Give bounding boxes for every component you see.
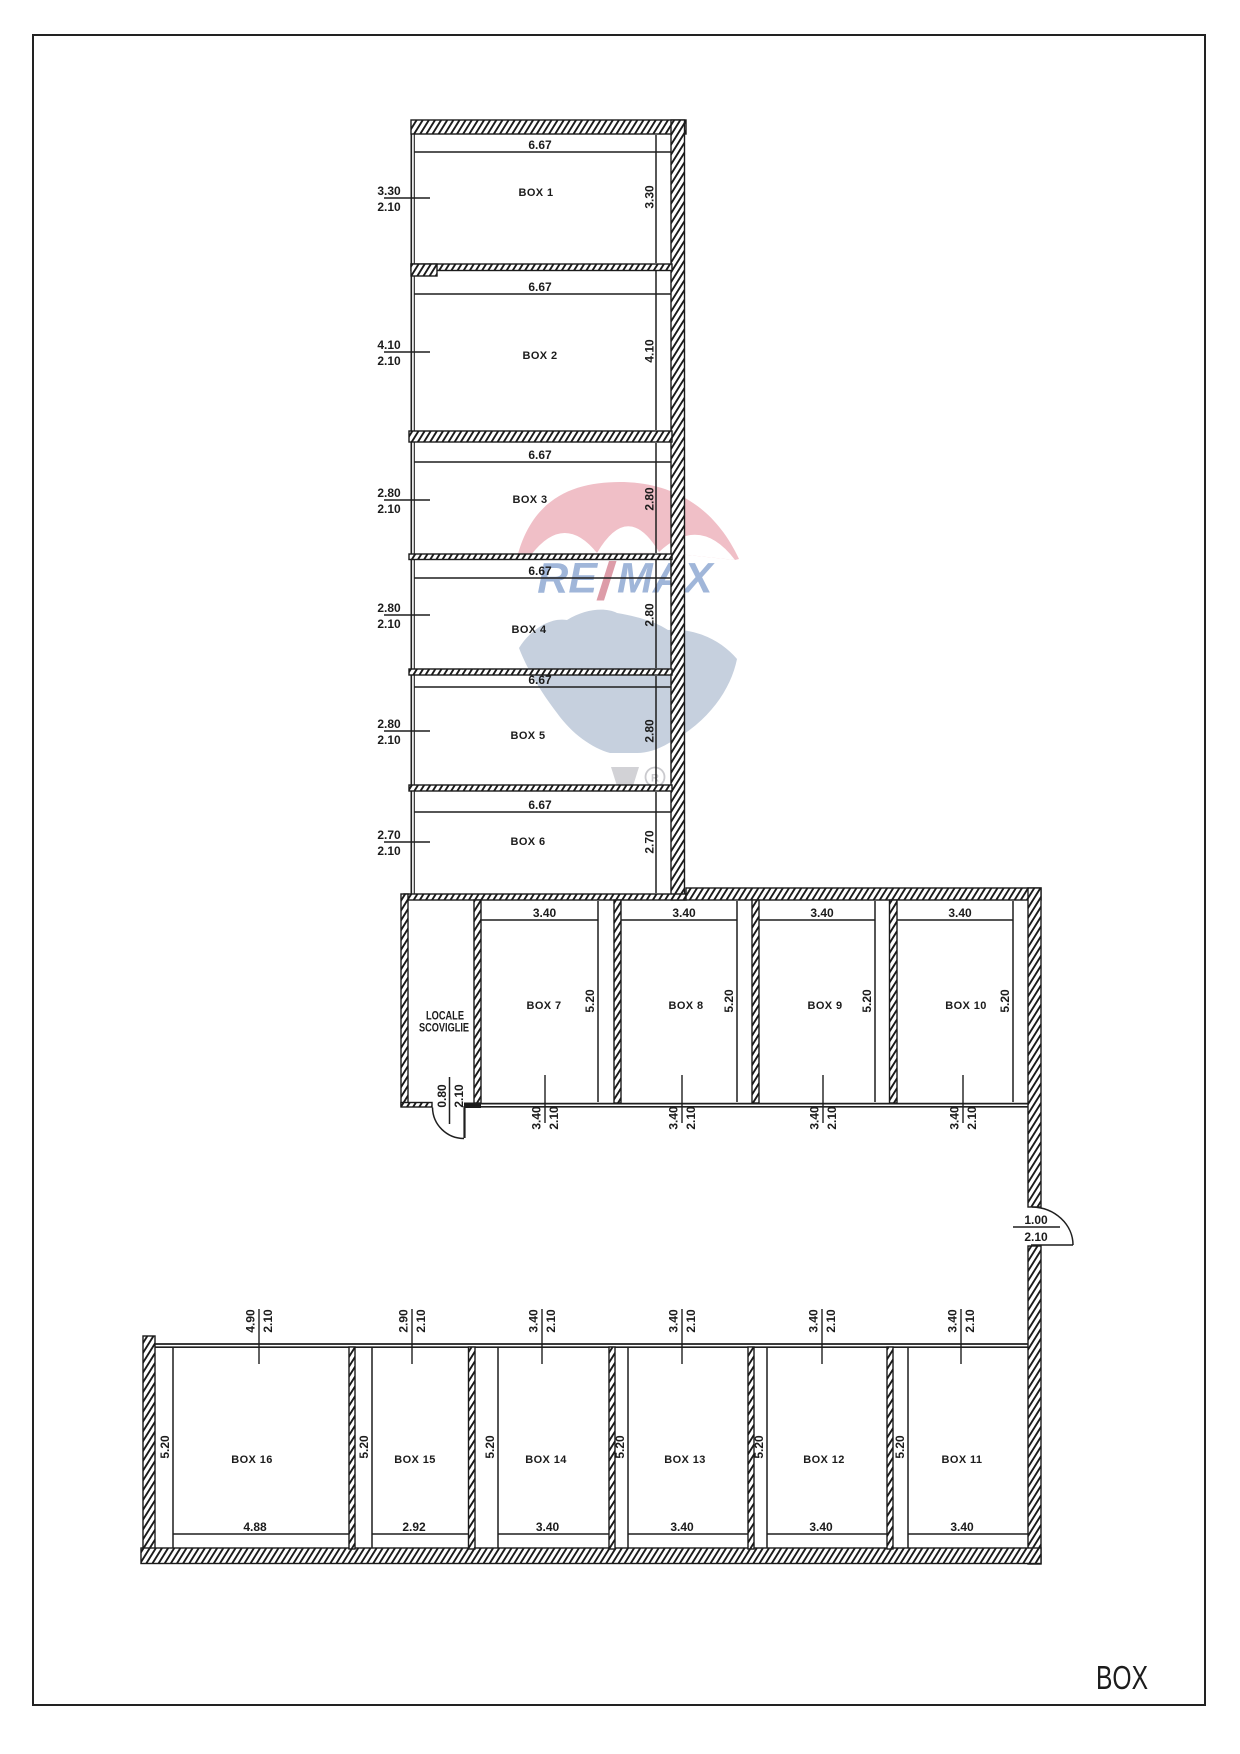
svg-text:5.20: 5.20	[722, 989, 736, 1013]
svg-text:6.67: 6.67	[528, 138, 552, 152]
svg-text:BOX 3: BOX 3	[512, 494, 547, 506]
svg-text:2.10: 2.10	[544, 1309, 558, 1333]
svg-text:3.40: 3.40	[948, 1106, 962, 1130]
svg-text:2.92: 2.92	[402, 1520, 426, 1534]
svg-text:2.90: 2.90	[397, 1309, 411, 1333]
svg-text:BOX 10: BOX 10	[945, 1000, 987, 1012]
svg-text:5.20: 5.20	[158, 1435, 172, 1459]
svg-text:6.67: 6.67	[528, 448, 552, 462]
svg-text:2.10: 2.10	[452, 1084, 466, 1108]
svg-text:2.80: 2.80	[643, 719, 657, 743]
svg-text:6.67: 6.67	[528, 673, 552, 687]
svg-text:2.10: 2.10	[963, 1309, 977, 1333]
svg-text:BOX 15: BOX 15	[394, 1454, 436, 1466]
svg-text:BOX 14: BOX 14	[525, 1454, 567, 1466]
svg-text:BOX 5: BOX 5	[510, 730, 545, 742]
svg-text:BOX 1: BOX 1	[518, 187, 553, 199]
svg-text:2.10: 2.10	[965, 1106, 979, 1130]
svg-text:3.40: 3.40	[536, 1520, 560, 1534]
svg-text:6.67: 6.67	[528, 798, 552, 812]
svg-text:2.10: 2.10	[261, 1309, 275, 1333]
svg-text:3.40: 3.40	[807, 1309, 821, 1333]
svg-text:2.70: 2.70	[643, 830, 657, 854]
svg-text:2.80: 2.80	[377, 486, 401, 500]
svg-text:3.40: 3.40	[809, 1520, 833, 1534]
svg-text:BOX 13: BOX 13	[664, 1454, 706, 1466]
svg-text:3.40: 3.40	[808, 1106, 822, 1130]
svg-text:2.80: 2.80	[377, 717, 401, 731]
svg-text:5.20: 5.20	[998, 989, 1012, 1013]
svg-text:3.40: 3.40	[672, 906, 696, 920]
svg-text:BOX 16: BOX 16	[231, 1454, 273, 1466]
svg-text:1.00: 1.00	[1024, 1213, 1048, 1227]
svg-text:3.40: 3.40	[667, 1106, 681, 1130]
svg-text:5.20: 5.20	[483, 1435, 497, 1459]
svg-text:5.20: 5.20	[860, 989, 874, 1013]
svg-text:3.40: 3.40	[533, 906, 557, 920]
svg-text:BOX 6: BOX 6	[510, 836, 545, 848]
svg-text:BOX 12: BOX 12	[803, 1454, 845, 1466]
svg-text:2.10: 2.10	[377, 844, 401, 858]
svg-text:4.10: 4.10	[377, 338, 401, 352]
svg-text:2.10: 2.10	[414, 1309, 428, 1333]
svg-text:2.10: 2.10	[684, 1106, 698, 1130]
svg-text:0.80: 0.80	[435, 1084, 449, 1108]
svg-text:2.10: 2.10	[377, 200, 401, 214]
svg-text:BOX 9: BOX 9	[807, 1000, 842, 1012]
svg-text:2.80: 2.80	[377, 601, 401, 615]
svg-text:5.20: 5.20	[752, 1435, 766, 1459]
svg-text:5.20: 5.20	[893, 1435, 907, 1459]
svg-text:2.80: 2.80	[643, 487, 657, 511]
svg-text:6.67: 6.67	[528, 564, 552, 578]
svg-text:4.90: 4.90	[244, 1309, 258, 1333]
svg-text:2.10: 2.10	[547, 1106, 561, 1130]
svg-text:3.40: 3.40	[948, 906, 972, 920]
svg-text:6.67: 6.67	[528, 280, 552, 294]
svg-text:BOX 11: BOX 11	[942, 1454, 983, 1466]
svg-text:3.40: 3.40	[530, 1106, 544, 1130]
svg-text:5.20: 5.20	[357, 1435, 371, 1459]
svg-text:3.40: 3.40	[946, 1309, 960, 1333]
svg-text:R: R	[651, 773, 659, 785]
svg-text:4.88: 4.88	[243, 1520, 267, 1534]
svg-text:3.30: 3.30	[377, 184, 401, 198]
svg-text:BOX 8: BOX 8	[668, 1000, 703, 1012]
svg-text:3.40: 3.40	[950, 1520, 974, 1534]
svg-text:3.40: 3.40	[670, 1520, 694, 1534]
svg-text:3.40: 3.40	[810, 906, 834, 920]
svg-text:2.10: 2.10	[377, 733, 401, 747]
svg-text:2.10: 2.10	[377, 354, 401, 368]
svg-text:BOX 4: BOX 4	[511, 624, 546, 636]
svg-text:BOX 2: BOX 2	[522, 350, 557, 362]
svg-text:2.10: 2.10	[684, 1309, 698, 1333]
svg-text:4.10: 4.10	[643, 339, 657, 363]
svg-text:2.10: 2.10	[377, 617, 401, 631]
svg-text:2.80: 2.80	[643, 603, 657, 627]
svg-text:3.40: 3.40	[527, 1309, 541, 1333]
svg-text:3.40: 3.40	[667, 1309, 681, 1333]
svg-text:5.20: 5.20	[613, 1435, 627, 1459]
svg-text:BOX: BOX	[1096, 1659, 1148, 1696]
svg-text:2.10: 2.10	[825, 1106, 839, 1130]
svg-text:2.10: 2.10	[824, 1309, 838, 1333]
svg-text:2.10: 2.10	[377, 502, 401, 516]
svg-text:5.20: 5.20	[583, 989, 597, 1013]
svg-text:2.10: 2.10	[1024, 1230, 1048, 1244]
svg-text:2.70: 2.70	[377, 828, 401, 842]
svg-text:3.30: 3.30	[643, 185, 657, 209]
svg-text:BOX 7: BOX 7	[526, 1000, 561, 1012]
svg-text:SCOVIGLIE: SCOVIGLIE	[419, 1021, 469, 1035]
